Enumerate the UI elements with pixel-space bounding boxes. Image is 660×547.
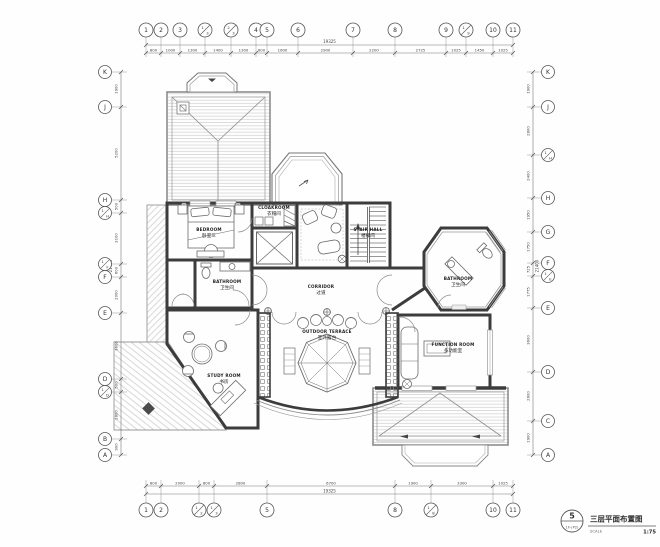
sink: [448, 261, 455, 268]
grid-axis-bubble: 5: [260, 23, 274, 37]
corridor-arch: [377, 275, 392, 305]
grid-axis-bubble: B: [99, 433, 112, 446]
grid-axis-bubble: 10: [486, 503, 500, 517]
svg-text:E: E: [103, 310, 107, 317]
dimension-text: 5200: [114, 148, 119, 158]
sink: [229, 264, 235, 270]
grid-axis-bubble: 1F: [99, 258, 112, 271]
grid-axis-bubble: 1: [139, 23, 153, 37]
svg-text:9: 9: [444, 27, 448, 34]
room-name-zh: 书房: [219, 378, 229, 385]
room-name-en: BATHROOM: [213, 279, 242, 284]
double-door-arc: [172, 294, 194, 306]
grid-axis-bubble: 1H: [99, 207, 112, 220]
dimension-text: 1300: [239, 47, 249, 52]
dimension-text: 1025: [498, 47, 508, 52]
dimension-text: 800: [150, 47, 158, 52]
grid-axis-bubble: 5: [260, 503, 274, 517]
left-terrace-strip: [147, 205, 167, 342]
dimension-text: 3600: [114, 341, 119, 351]
svg-text:4: 4: [254, 27, 258, 34]
dimension-text: 900: [114, 443, 119, 451]
dimension-text: 3300: [457, 480, 467, 485]
svg-text:1: 1: [144, 507, 148, 514]
dimension-text: 600: [258, 47, 266, 52]
grid-axis-bubble: C: [542, 415, 555, 428]
sheet-number: 5: [569, 512, 575, 521]
svg-text:7: 7: [351, 27, 355, 34]
dimension-text: 1900: [526, 433, 531, 443]
dimension-text: 2900: [321, 47, 331, 52]
wall-corridor-east: [390, 268, 425, 310]
door-arc: [238, 218, 252, 232]
grid-top: 1932580010001300140013006001600290022002…: [139, 23, 520, 57]
svg-text:8: 8: [393, 507, 397, 514]
plus-circle-icon: [324, 309, 331, 316]
bay-window-top-center: [272, 153, 342, 205]
grid-axis-bubble: K: [99, 66, 112, 79]
room-name-zh: 楼梯间: [361, 232, 375, 239]
grid-axis-bubble: 11: [506, 503, 520, 517]
grid-axis-bubble: 23: [224, 23, 238, 37]
grid-right: 1900280024001950175072517753600280019002…: [526, 66, 555, 462]
planter-column: [258, 313, 270, 397]
armchair: [301, 210, 318, 226]
chair: [183, 366, 194, 377]
sofa: [401, 327, 418, 379]
room-name-zh: 室外露台: [318, 334, 337, 341]
grid-axis-bubble: F: [542, 257, 555, 270]
corridor-arch: [252, 275, 267, 305]
grid-axis-bubble: E: [542, 302, 555, 315]
svg-text:2: 2: [159, 27, 163, 34]
room-label-cloakroom: CLOAKROOM衣帽间: [258, 205, 290, 217]
room-name-en: OUTDOOR TERRACE: [302, 329, 351, 334]
total-dimension: 19325: [323, 489, 336, 494]
chair: [216, 341, 227, 352]
planter-column: [386, 313, 398, 397]
svg-text:6: 6: [296, 27, 300, 34]
terrace-bench: [284, 348, 295, 374]
chair: [184, 332, 195, 343]
dimension-text: 3600: [526, 335, 531, 345]
grid-axis-bubble: J: [542, 101, 555, 114]
grid-axis-bubble: 10: [486, 23, 500, 37]
svg-text:H: H: [549, 156, 552, 161]
dimension-text: 2200: [369, 47, 379, 52]
svg-text:B: B: [103, 436, 107, 443]
svg-text:F: F: [106, 265, 108, 270]
grid-axis-bubble: D: [542, 366, 555, 379]
dimension-text: 1900: [526, 84, 531, 94]
svg-text:G: G: [546, 229, 551, 236]
total-dimension: 19325: [323, 39, 336, 44]
svg-text:F: F: [546, 260, 550, 267]
grid-axis-bubble: H: [542, 192, 555, 205]
svg-text:H: H: [106, 214, 109, 219]
dormer-bay-top-left: [187, 73, 237, 92]
svg-text:D: D: [106, 393, 109, 398]
grid-axis-bubble: 9: [439, 23, 453, 37]
dimension-text: 1025: [451, 47, 461, 52]
grid-axis-bubble: 12: [192, 503, 206, 517]
nightstand: [178, 205, 187, 214]
threshold: [452, 305, 466, 310]
toilet: [202, 268, 210, 279]
room-label-corridor: CORRIDOR过道: [308, 284, 335, 296]
scale-value: 1:75: [643, 530, 656, 536]
dimension-text: 2000: [175, 480, 185, 485]
svg-text:1: 1: [144, 27, 148, 34]
grid-axis-bubble: 11: [506, 23, 520, 37]
dimension-text: 2000: [114, 290, 119, 300]
wall-closet-left: [167, 260, 195, 308]
furniture-function: [401, 327, 450, 389]
french-door-arcs: [272, 312, 296, 324]
svg-text:E: E: [546, 305, 550, 312]
dimension-text: 1000: [166, 47, 176, 52]
grid-axis-bubble: 1D: [99, 386, 112, 399]
door-arc: [235, 310, 250, 325]
grid-axis-bubble: 7: [346, 23, 360, 37]
grid-axis-bubble: 2: [154, 23, 168, 37]
dimension-text: 500: [114, 381, 119, 389]
svg-text:5: 5: [265, 27, 269, 34]
armchair: [321, 204, 338, 219]
room-name-en: CLOAKROOM: [258, 205, 290, 210]
dimension-text: 800: [203, 480, 211, 485]
room-name-zh: 卫生间: [451, 281, 465, 288]
room-label-bathroom-left: BATHROOM卫生间: [213, 279, 242, 291]
svg-text:8: 8: [393, 27, 397, 34]
dimension-text: 800: [150, 480, 158, 485]
dimension-text: 2800: [526, 391, 531, 401]
total-dimension: 21400: [535, 259, 540, 272]
grid-axis-bubble: 2: [154, 503, 168, 517]
svg-text:F: F: [103, 274, 107, 281]
dimension-text: 1025: [498, 480, 508, 485]
grid-axis-bubble: 1: [139, 503, 153, 517]
room-name-en: STAIR HALL: [353, 227, 382, 232]
grid-axis-bubble: J: [99, 101, 112, 114]
grid-axis-bubble: 6: [291, 23, 305, 37]
grid-axis-bubble: A: [542, 449, 555, 462]
svg-text:D: D: [546, 369, 551, 376]
sheet-code: 1F-(P2): [566, 526, 580, 530]
svg-text:H: H: [546, 195, 551, 202]
room-name-zh: 卫生间: [220, 284, 234, 291]
room-name-en: CORRIDOR: [308, 284, 335, 289]
dimension-text: 500: [114, 202, 119, 210]
tv-cabinet: [197, 251, 224, 257]
room-name-zh: 多功能室: [444, 347, 463, 354]
dimension-text: 1600: [278, 47, 288, 52]
svg-text:11: 11: [509, 507, 517, 514]
title-block: 5 1F-(P2) 三层平面布置图 SCALE 1:75: [561, 510, 656, 536]
dimension-text: 2800: [114, 410, 119, 420]
chaise: [317, 239, 341, 255]
french-door-arcs: [358, 312, 382, 324]
room-name-zh: 过道: [316, 289, 326, 296]
grid-axis-bubble: F: [99, 271, 112, 284]
grid-axis-bubble: H: [99, 194, 112, 207]
grid-axis-bubble: 13: [207, 503, 221, 517]
svg-text:J: J: [103, 104, 106, 111]
grid-axis-bubble: 1E: [542, 270, 555, 283]
svg-text:5: 5: [265, 507, 269, 514]
room-name-en: FUNCTION ROOM: [432, 342, 475, 347]
terrace-table: [323, 317, 332, 326]
scale-label: SCALE: [590, 529, 603, 534]
grid-axis-bubble: E: [99, 307, 112, 320]
svg-text:3: 3: [178, 27, 182, 34]
grid-axis-bubble: D: [99, 373, 112, 386]
svg-text:C: C: [546, 418, 550, 425]
parasol-table: [298, 334, 356, 392]
grid-axis-bubble: 1H: [542, 149, 555, 162]
svg-text:10: 10: [489, 507, 497, 514]
svg-text:10: 10: [489, 27, 497, 34]
svg-text:11: 11: [509, 27, 517, 34]
drawing-sheet: 1932580010001300140013006001600290022002…: [0, 0, 660, 547]
room-name-en: BATHROOM: [444, 276, 473, 281]
dimension-text: 1400: [213, 47, 223, 52]
elevator: [252, 228, 297, 268]
dimension-text: 1750: [526, 242, 531, 252]
dimension-text: 725: [526, 265, 531, 273]
dimension-text: 1450: [475, 47, 485, 52]
toilet-tank: [201, 263, 211, 267]
svg-text:2: 2: [159, 507, 163, 514]
svg-text:D: D: [103, 376, 108, 383]
dimension-text: 1900: [408, 480, 418, 485]
dimension-text: 1900: [114, 84, 119, 94]
grid-axis-bubble: 13: [198, 23, 212, 37]
dimension-text: 600: [114, 266, 119, 274]
dimension-text: 2800: [236, 480, 246, 485]
drawing-title: 三层平面布置图: [590, 514, 643, 524]
grid-axis-bubble: A: [99, 449, 112, 462]
svg-text:J: J: [546, 104, 549, 111]
terrace-bench: [359, 348, 370, 374]
dimension-text: 3100: [114, 233, 119, 243]
grid-axis-bubble: 8: [388, 23, 402, 37]
grid-axis-bubble: K: [542, 66, 555, 79]
door-arc: [233, 290, 249, 306]
side-table: [331, 223, 341, 233]
room-name-en: STUDY ROOM: [207, 373, 240, 378]
dimension-text: 2400: [526, 171, 531, 181]
grid-axis-bubble: 19: [459, 23, 473, 37]
nightstand: [235, 205, 244, 214]
grid-axis-bubble: G: [542, 226, 555, 239]
roof-top-left: [167, 92, 270, 205]
furniture-bathroom-left: [201, 262, 250, 279]
grid-axis-bubble: 8: [388, 503, 402, 517]
svg-text:H: H: [103, 197, 108, 204]
terrace-chairs: [298, 315, 357, 329]
grid-axis-bubble: 3: [173, 23, 187, 37]
dimension-text: 1950: [526, 210, 531, 220]
grid-bottom: 1932580020008002800670019003300102512121…: [139, 480, 520, 517]
dimension-text: 1775: [526, 287, 531, 297]
room-name-zh: 衣帽间: [267, 210, 281, 217]
room-name-zh: 卧室三: [202, 232, 216, 239]
dimension-text: 2725: [416, 47, 426, 52]
furniture-sitting: [301, 204, 346, 263]
dimension-text: 1300: [188, 47, 198, 52]
floor-plan-svg: 1932580010001300140013006001600290022002…: [0, 0, 660, 547]
grid-axis-bubble: 18: [424, 503, 438, 517]
dimension-text: 6700: [326, 480, 336, 485]
dimension-text: 2800: [526, 126, 531, 136]
room-name-en: BEDROOM: [196, 227, 221, 232]
